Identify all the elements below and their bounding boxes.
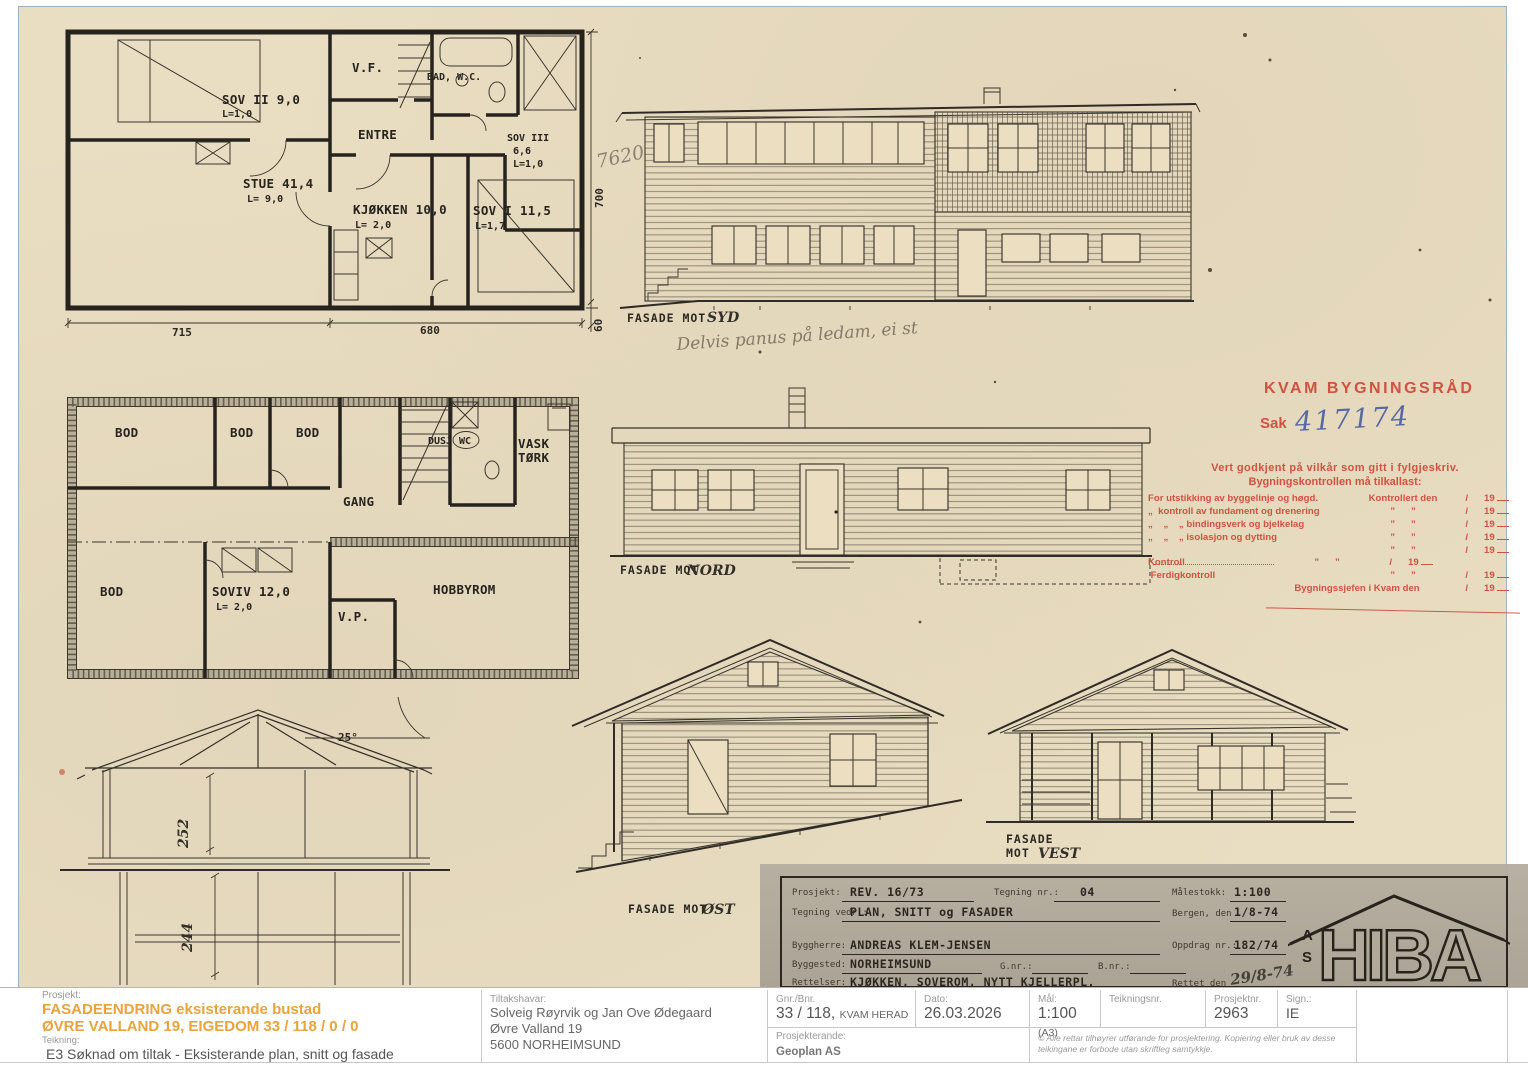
stamp-row: Bygningssjefen i Kvam den/19	[1148, 582, 1522, 595]
facade-syd-label: FASADE MOT	[627, 311, 706, 325]
red-mark	[59, 769, 65, 775]
stamp-row-slash: /	[1452, 506, 1468, 517]
section-height-lower: 244	[180, 923, 196, 953]
facade-nord-direction: NORD	[686, 563, 737, 579]
footer-tiltakshavar-line3: 5600 NORHEIMSUND	[490, 1037, 767, 1053]
stamp-year-line	[1497, 531, 1509, 540]
footer-teikningsnr-cell: Teikningsnr.	[1100, 990, 1205, 1027]
footer-gnr-cell: Gnr./Bnr. 33 / 118, KVAM HERAD	[767, 990, 915, 1027]
facade-vest: FASADE MOT VEST	[986, 650, 1356, 862]
footer-gnr-area: KVAM HERAD	[840, 1009, 909, 1021]
facade-syd: FASADE MOT SYD Delvis panus på ledam, ei…	[594, 88, 1200, 355]
footer-gnr-label: Gnr./Bnr.	[776, 994, 915, 1005]
room-label-entre: ENTRE	[358, 127, 397, 142]
room-label-vask: VASK	[518, 436, 549, 451]
tb-underline	[1130, 972, 1186, 974]
footer-gnr-value: 33 / 118,	[776, 1005, 835, 1022]
cross-section: 25° 252 244	[59, 697, 450, 985]
footer-tiltakshavar-cell: Tiltakshavar: Solveig Røyrvik og Jan Ove…	[481, 990, 767, 1062]
room-label-sov3: SOV III	[507, 133, 549, 144]
room-label-bod4: BOD	[100, 584, 123, 599]
facade-ost-direction: ØST	[701, 902, 736, 918]
tb-rettet-date-handwritten: 29/8-74	[1229, 961, 1295, 989]
room-label-vp: V.P.	[338, 609, 369, 624]
room-label-sov2-l: L=1,0	[222, 109, 252, 120]
stamp-row-mid: Kontrollert den	[1354, 493, 1452, 504]
room-label-vf: V.F.	[352, 60, 383, 75]
drawing-title-block: Prosjekt: REV. 16/73 Tegning nr.: 04 Mål…	[780, 876, 1508, 988]
stamp-row-slash: /	[1452, 532, 1468, 543]
stamp-row-year: 19	[1484, 532, 1495, 543]
tb-byggested-label: Byggested:	[792, 960, 846, 970]
stamp-row: „ „ „ isolasjon og dytting” ”/19	[1148, 531, 1522, 544]
room-label-sov2: SOV II 9,0	[222, 92, 300, 107]
footer-prosjekt-line1: FASADEENDRING eksisterande bustad	[42, 1001, 481, 1018]
room-label-bad: BAD, W.C.	[427, 72, 481, 83]
tb-byggested-value: NORHEIMSUND	[850, 957, 932, 971]
room-label-sov4-l: L= 2,0	[216, 602, 252, 613]
stamp-year-line	[1497, 569, 1509, 578]
footer-dato-label: Dato:	[924, 994, 1029, 1005]
stamp-row-mid: Bygningssjefen i Kvam den	[1262, 583, 1452, 594]
footer-sign-cell: Sign.: IE	[1277, 990, 1356, 1027]
footer-teikning-label: Teikning:	[42, 1035, 481, 1046]
footer-teikning-value: E3 Søknad om tiltak - Eksisterande plan,…	[46, 1046, 481, 1062]
room-label-sov3-l: L=1,0	[513, 159, 543, 170]
tb-malestokk-value: 1:100	[1234, 885, 1271, 899]
stamp-row-mid: ” ”	[1354, 570, 1452, 581]
footer-prosjektnr-cell: Prosjektnr. 2963	[1205, 990, 1277, 1027]
facade-nord: FASADE MOT NORD	[610, 388, 1152, 584]
footer-copyright-text: © Alle rettar tilhøyrer utførande for pr…	[1038, 1033, 1342, 1054]
room-label-sov4: SOVIV 12,0	[212, 584, 290, 599]
room-label-bod3: BOD	[296, 425, 319, 440]
stamp-year-line	[1497, 582, 1509, 591]
tb-tegningnr-value: 04	[1080, 885, 1095, 899]
dim-715: 715	[172, 326, 192, 339]
footer-mal-value: 1:100	[1038, 1005, 1077, 1022]
municipal-stamp: KVAM BYGNINGSRÅD Sak417174 Vert godkjent…	[1148, 380, 1522, 595]
room-label-tork: TØRK	[518, 450, 549, 465]
stamp-row-slash: /	[1452, 519, 1468, 530]
page: SOV II 9,0 L=1,0 V.F. BAD, W.C. ENTRE SO…	[0, 0, 1528, 1080]
stamp-case-number-handwritten: 417174	[1294, 401, 1411, 438]
room-label-wc: WC	[459, 436, 471, 447]
stamp-row-year: 19	[1408, 557, 1419, 568]
footer-prosjektnr-label: Prosjektnr.	[1214, 994, 1277, 1005]
stamp-row-left: Ferdigkontroll	[1148, 570, 1354, 581]
footer-tiltakshavar-label: Tiltakshavar:	[490, 994, 767, 1005]
room-label-dusj: DUSJ	[428, 436, 452, 447]
tb-bnr-label: B.nr.:	[1098, 962, 1131, 972]
stamp-row-slash: /	[1452, 570, 1468, 581]
footer-project-cell: Prosjekt: FASADEENDRING eksisterande bus…	[30, 990, 481, 1062]
stamp-row-year: 19	[1484, 545, 1495, 556]
stamp-year-line	[1497, 544, 1509, 553]
stamp-case-row: Sak417174	[1260, 404, 1522, 438]
footer-dato-value: 26.03.2026	[924, 1005, 1002, 1022]
stamp-row: Kontroll” ”/19	[1148, 556, 1522, 569]
footer-prosjektnr-value: 2963	[1214, 1005, 1248, 1022]
scanned-drawing: SOV II 9,0 L=1,0 V.F. BAD, W.C. ENTRE SO…	[0, 0, 1528, 988]
tb-byggherre-value: ANDREAS KLEM-JENSEN	[850, 938, 991, 952]
stamp-row-left: „ „ „ bindingsverk og bjelkelag	[1148, 519, 1354, 530]
stamp-row: „ kontroll av fundament og drenering” ”/…	[1148, 505, 1522, 518]
room-label-gang: GANG	[343, 494, 374, 509]
tb-prosjekt-value: REV. 16/73	[850, 885, 924, 899]
tb-malestokk-label: Målestokk:	[1172, 888, 1226, 898]
stamp-row-left: For utstikking av byggelinje og høgd.	[1148, 493, 1354, 504]
room-label-stue-l: L= 9,0	[247, 194, 283, 205]
room-label-sov1: SOV I 11,5	[473, 203, 551, 218]
footer-prosjekt-line2: ØVRE VALLAND 19, EIGEDOM 33 / 118 / 0 / …	[42, 1018, 481, 1035]
stamp-year-line	[1497, 505, 1509, 514]
hiba-logo: HIBA A S	[1288, 878, 1510, 985]
tb-underline	[1032, 972, 1088, 974]
stamp-row-year: 19	[1484, 506, 1495, 517]
stamp-row-slash: /	[1452, 493, 1468, 504]
room-label-sov1-l: L=1,7	[475, 221, 505, 232]
footer-prosjekt-label: Prosjekt:	[42, 990, 481, 1001]
floor-plan-basement: BOD BOD BOD DUSJ WC VASK TØRK GANG BOD S…	[68, 398, 579, 679]
footer-mal-label: Mål:	[1038, 994, 1100, 1005]
tb-oppdrag-label: Oppdrag nr.:	[1172, 941, 1237, 951]
stamp-row: Ferdigkontroll” ”/19	[1148, 569, 1522, 582]
room-label-bod1: BOD	[115, 425, 138, 440]
stamp-row: For utstikking av byggelinje og høgd.Kon…	[1148, 492, 1522, 505]
tb-oppdrag-value: 182/74	[1234, 938, 1279, 952]
dim-60: 60	[592, 319, 605, 332]
footer-mal-cell: Mål: 1:100 (A3)	[1029, 990, 1100, 1027]
tb-prosjekt-label: Prosjekt:	[792, 888, 841, 898]
tb-underline	[1230, 920, 1286, 922]
tb-bergen-value: 1/8-74	[1234, 905, 1279, 919]
tb-gnr-label: G.nr.:	[1000, 962, 1033, 972]
facade-ost-label: FASADE MOT	[628, 902, 707, 916]
stamp-row-slash: /	[1452, 545, 1468, 556]
document-footer: Prosjekt: FASADEENDRING eksisterande bus…	[0, 987, 1528, 1080]
stamp-sak-label: Sak	[1260, 415, 1287, 432]
section-roof-angle: 25°	[338, 731, 358, 744]
stamp-row-year: 19	[1484, 519, 1495, 530]
tb-underline	[842, 972, 982, 974]
stamp-control-line: Bygningskontrollen må tilkallast:	[1148, 476, 1522, 488]
footer-tiltakshavar-line1: Solveig Røyrvik og Jan Ove Ødegaard	[490, 1005, 767, 1021]
tb-underline	[1230, 900, 1286, 902]
stamp-row-mid: ” ”	[1354, 532, 1452, 543]
room-label-stue: STUE 41,4	[243, 176, 313, 191]
stamp-year-line	[1497, 492, 1509, 501]
stamp-row-mid: ” ”	[1354, 545, 1452, 556]
stamp-row: „ „ „ bindingsverk og bjelkelag” ”/19	[1148, 518, 1522, 531]
hiba-as-bottom: S	[1302, 949, 1312, 966]
stamp-row-year: 19	[1484, 583, 1495, 594]
floor-plan-main: SOV II 9,0 L=1,0 V.F. BAD, W.C. ENTRE SO…	[65, 29, 606, 339]
tb-underline	[1054, 900, 1160, 902]
pencil-mark: 7620	[594, 141, 646, 173]
stamp-dotted-line	[1154, 557, 1274, 565]
footer-copyright-cell: © Alle rettar tilhøyrer utførande for pr…	[1029, 1027, 1356, 1062]
facade-vest-direction: VEST	[1038, 846, 1082, 862]
footer-sign-label: Sign.:	[1286, 994, 1356, 1005]
room-label-kjokken: KJØKKEN 10,0	[353, 202, 447, 217]
room-label-sov3-area: 6,6	[513, 146, 531, 157]
dim-700: 700	[593, 188, 606, 208]
tb-tegningvedr-value: PLAN, SNITT og FASADER	[850, 905, 1013, 919]
tb-underline	[842, 920, 1160, 922]
footer-bottom-line	[0, 1062, 1528, 1063]
footer-prosjekterande-cell: Prosjekterande: Geoplan AS	[767, 1027, 1029, 1062]
stamp-row-left: „ „ „ isolasjon og dytting	[1148, 532, 1354, 543]
room-label-kjokken-l: L= 2,0	[355, 220, 391, 231]
facade-vest-label-1: FASADE	[1006, 832, 1054, 846]
footer-sign-value: IE	[1286, 1005, 1299, 1021]
stamp-year-line	[1497, 518, 1509, 527]
stamp-row-year: 19	[1484, 493, 1495, 504]
facade-vest-label-2: MOT	[1006, 846, 1030, 860]
dim-680: 680	[420, 324, 440, 337]
section-height-upper: 252	[176, 819, 192, 849]
tb-underline	[1230, 953, 1286, 955]
stamp-row-slash: /	[1376, 557, 1392, 568]
room-label-bod2: BOD	[230, 425, 253, 440]
stamp-row-year: 19	[1484, 570, 1495, 581]
room-label-hobbyrom: HOBBYROM	[433, 582, 496, 597]
stamp-row: ” ”/19	[1148, 544, 1522, 557]
stamp-row-left: „ kontroll av fundament og drenering	[1148, 506, 1354, 517]
footer-prosjekterande-value: Geoplan AS	[776, 1046, 841, 1058]
tb-bergen-label: Bergen, den	[1172, 909, 1232, 919]
footer-dato-cell: Dato: 26.03.2026	[915, 990, 1029, 1027]
tb-underline	[842, 953, 1160, 955]
stamp-year-line	[1421, 556, 1433, 565]
tb-underline	[842, 900, 974, 902]
stamp-row-slash: /	[1452, 583, 1468, 594]
stamp-row-mid: ” ”	[1354, 519, 1452, 530]
stamp-approval-line: Vert godkjent på vilkår som gitt i fylgj…	[1148, 462, 1522, 474]
hiba-as-top: A	[1302, 927, 1313, 944]
tb-tegningnr-label: Tegning nr.:	[994, 888, 1059, 898]
footer-tiltakshavar-line2: Øvre Valland 19	[490, 1021, 767, 1037]
tb-byggherre-label: Byggherre:	[792, 941, 846, 951]
stamp-control-rows: For utstikking av byggelinje og høgd.Kon…	[1148, 492, 1522, 595]
footer-empty-cell	[1356, 990, 1508, 1062]
stamp-row-mid: ” ”	[1354, 506, 1452, 517]
facade-syd-direction: SYD	[707, 310, 740, 326]
stamp-row-mid: ” ”	[1278, 557, 1376, 568]
stamp-title: KVAM BYGNINGSRÅD	[1264, 380, 1522, 398]
footer-teikningsnr-label: Teikningsnr.	[1109, 994, 1205, 1005]
footer-prosjekterande-label: Prosjekterande:	[776, 1031, 1029, 1042]
hiba-logo-text: HIBA	[1318, 916, 1481, 985]
